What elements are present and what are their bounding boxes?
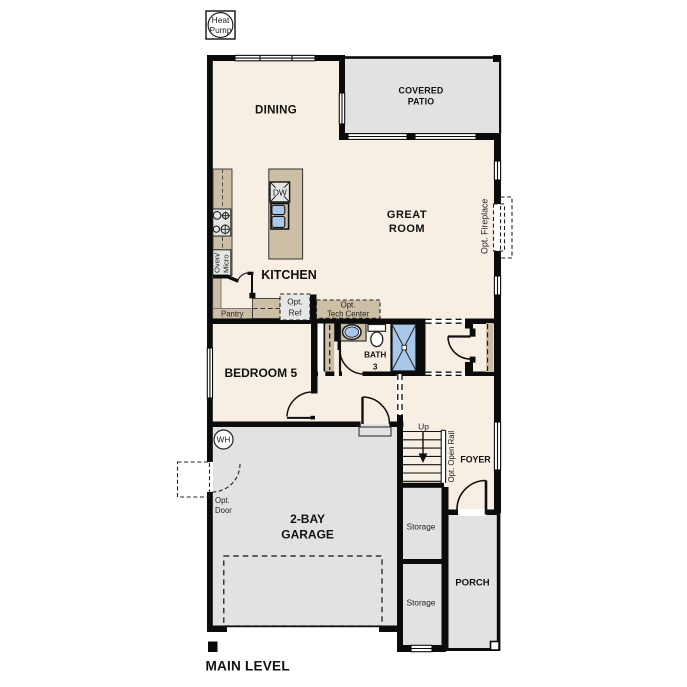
svg-text:GARAGE: GARAGE — [281, 528, 334, 542]
svg-text:ROOM: ROOM — [389, 223, 425, 235]
svg-text:BEDROOM 5: BEDROOM 5 — [224, 366, 297, 380]
svg-text:KITCHEN: KITCHEN — [261, 268, 317, 282]
svg-text:Opt.: Opt. — [287, 298, 302, 307]
svg-text:COVERED: COVERED — [399, 86, 444, 96]
svg-text:Pump: Pump — [210, 25, 232, 35]
svg-text:DW: DW — [273, 187, 287, 197]
svg-text:3: 3 — [373, 363, 378, 372]
svg-text:Micro: Micro — [222, 254, 231, 273]
svg-text:Storage: Storage — [407, 523, 436, 532]
svg-text:Oven/: Oven/ — [213, 252, 222, 273]
svg-text:PORCH: PORCH — [455, 577, 489, 588]
svg-text:WH: WH — [217, 436, 231, 445]
svg-text:Door: Door — [215, 506, 232, 515]
svg-text:FOYER: FOYER — [460, 455, 491, 465]
svg-text:GREAT: GREAT — [387, 209, 427, 221]
svg-text:MAIN LEVEL: MAIN LEVEL — [206, 659, 290, 674]
svg-text:2-BAY: 2-BAY — [290, 512, 325, 526]
svg-text:Storage: Storage — [407, 598, 436, 607]
svg-text:Opt.: Opt. — [341, 301, 356, 310]
svg-text:BATH: BATH — [364, 351, 386, 360]
svg-text:Opt.: Opt. — [215, 496, 230, 505]
svg-text:Opt. Open Rail: Opt. Open Rail — [447, 431, 456, 483]
svg-text:Opt. Fireplace: Opt. Fireplace — [480, 199, 490, 254]
svg-text:DINING: DINING — [255, 105, 297, 117]
svg-text:Tech Center: Tech Center — [327, 310, 369, 319]
svg-text:Heat: Heat — [212, 15, 230, 25]
svg-text:Pantry: Pantry — [221, 309, 244, 318]
svg-text:Ref: Ref — [289, 309, 302, 318]
svg-text:Up: Up — [418, 421, 429, 431]
svg-text:PATIO: PATIO — [408, 97, 435, 107]
